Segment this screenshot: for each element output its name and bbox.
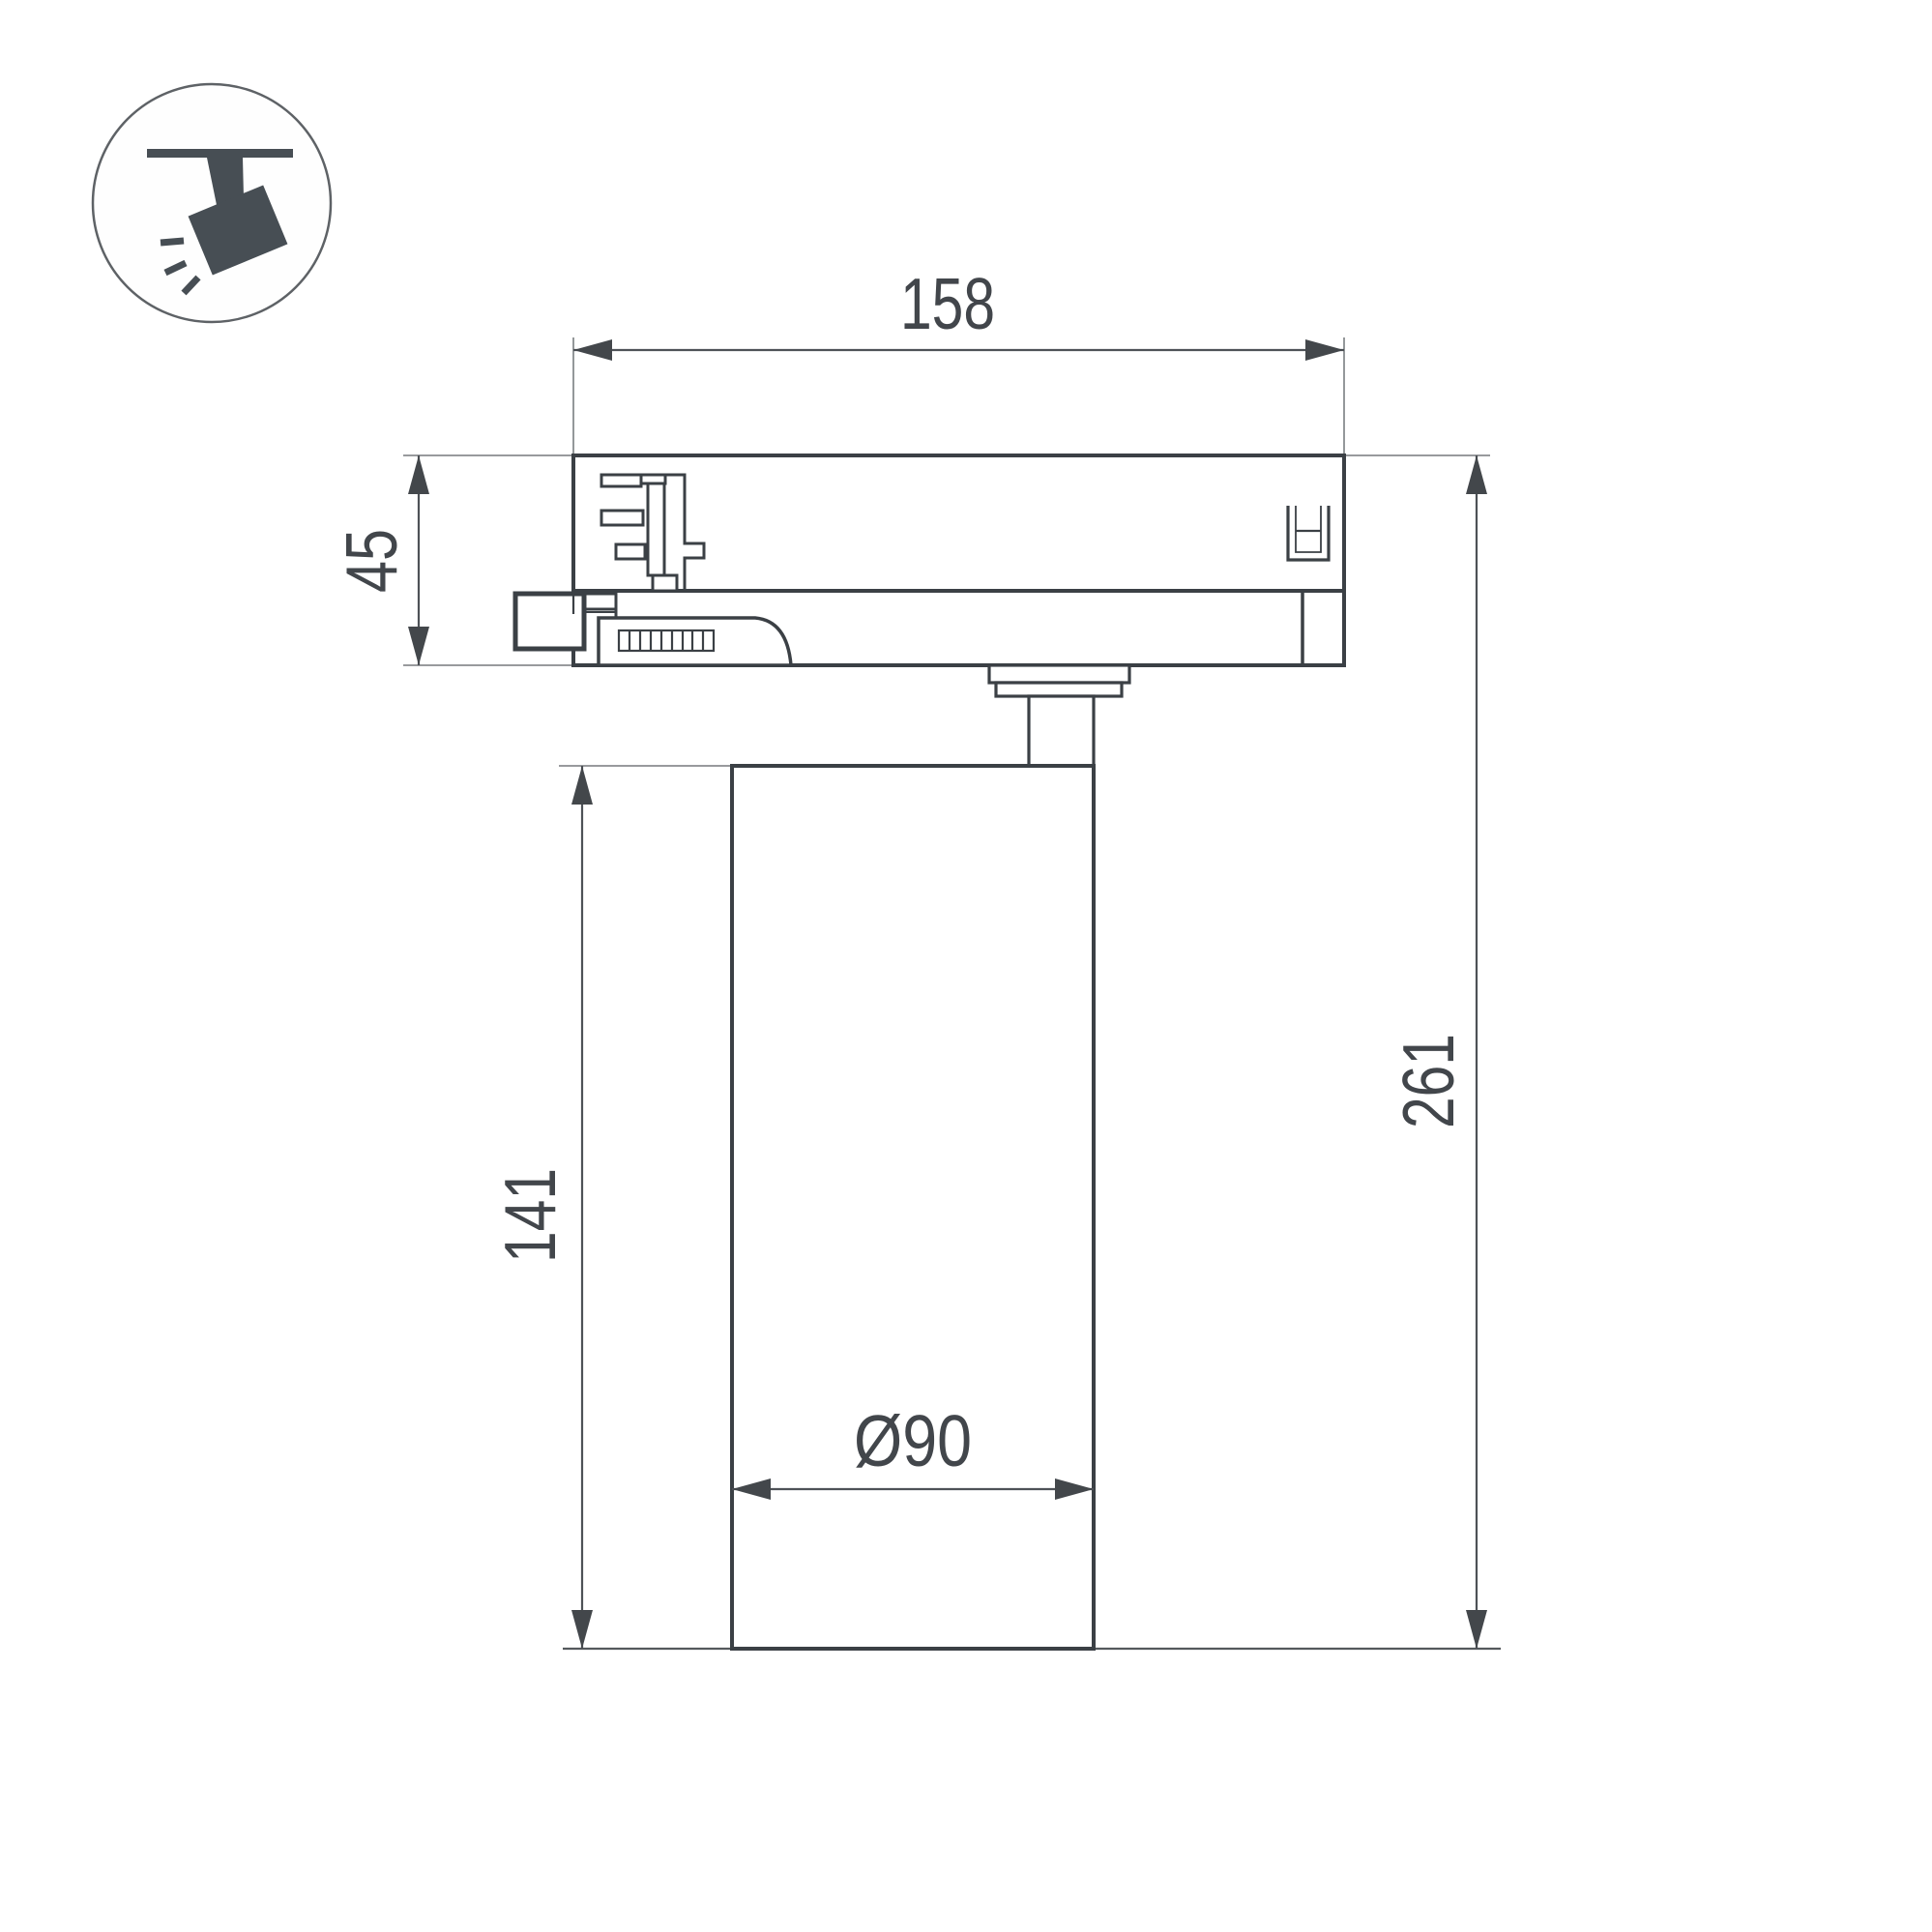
arrow-top-261 xyxy=(1466,455,1487,494)
dim-label-158: 158 xyxy=(900,263,995,344)
prong-center-pin xyxy=(648,483,664,575)
latch-tab xyxy=(584,594,616,609)
prong-top xyxy=(601,475,641,486)
prong-middle xyxy=(601,511,643,525)
dimension-adapter-width: 158 xyxy=(573,263,1344,361)
arrow-top-45 xyxy=(408,455,429,494)
dim-label-45: 45 xyxy=(331,529,412,593)
stem xyxy=(1029,696,1094,766)
technical-drawing: 158 45 141 261 Ø90 xyxy=(0,0,1932,1932)
icon-circle xyxy=(93,84,331,322)
dim-label-261: 261 xyxy=(1388,1034,1469,1128)
dim-label-d90: Ø90 xyxy=(854,1400,972,1481)
end-clip xyxy=(1288,506,1329,560)
track-adapter xyxy=(515,455,1344,766)
arrow-top-141 xyxy=(571,766,593,805)
lamp-cylinder xyxy=(732,766,1094,1649)
arrow-bottom-261 xyxy=(1466,1610,1487,1649)
product-icon xyxy=(93,84,331,322)
adapter-upper-body xyxy=(573,455,1344,591)
prong-bottom xyxy=(616,544,645,559)
dimension-adapter-height: 45 xyxy=(331,455,429,665)
dimension-total-height: 261 xyxy=(1388,455,1487,1649)
flange-step-1 xyxy=(989,665,1129,683)
icon-track-bar xyxy=(147,149,293,158)
arrow-bottom-141 xyxy=(571,1610,593,1649)
vent-slots xyxy=(619,630,714,651)
prong-foot xyxy=(653,575,677,591)
dimension-cylinder-height: 141 xyxy=(489,766,593,1649)
arrow-left-158 xyxy=(573,339,612,361)
flange-step-2 xyxy=(996,683,1122,696)
arrow-bottom-45 xyxy=(408,627,429,665)
drawing-canvas: 158 45 141 261 Ø90 xyxy=(0,0,1932,1932)
dim-label-141: 141 xyxy=(489,1168,571,1263)
swivel-mount xyxy=(989,665,1129,766)
arrow-right-158 xyxy=(1305,339,1344,361)
